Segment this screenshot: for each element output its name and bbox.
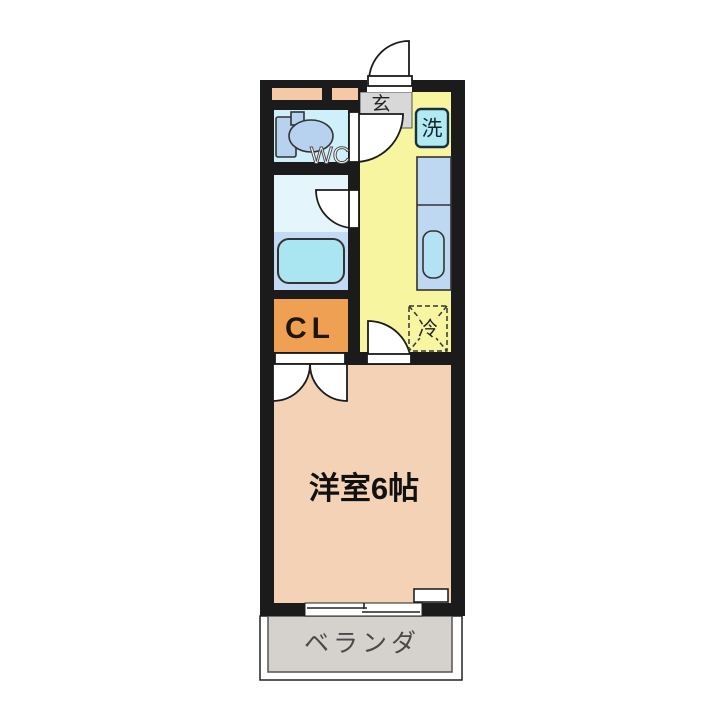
fridge-label: 冷	[418, 317, 438, 340]
bathtub-icon	[278, 239, 344, 283]
floorplan-page: 玄 洗 WC CL 冷 洋室6帖 ベランダ	[0, 0, 720, 720]
kitchen-sink	[423, 231, 444, 278]
room-vent-box	[414, 589, 448, 602]
main-room-door-leaf	[367, 354, 411, 364]
kitchen-counter	[417, 157, 451, 290]
toilet-label: WC	[310, 142, 350, 169]
entrance-door-leaf	[368, 76, 412, 86]
wall-accent-left	[272, 88, 322, 100]
floorplan-drawing: 玄 洗 WC CL 冷 洋室6帖 ベランダ	[0, 0, 720, 720]
closet-label: CL	[285, 312, 335, 345]
veranda-label: ベランダ	[304, 630, 420, 658]
bath-door-leaf	[349, 190, 359, 228]
wall-bath-closet-divider	[274, 290, 354, 299]
closet-door-opening	[275, 353, 345, 364]
wall-right	[451, 80, 465, 616]
main-room-label: 洋室6帖	[309, 471, 419, 506]
wc-door-leaf	[349, 112, 359, 162]
wall-accent-right	[332, 88, 358, 100]
wall-accents	[272, 88, 358, 100]
entrance-label: 玄	[371, 93, 390, 115]
veranda-window	[305, 603, 422, 616]
washer-label: 洗	[422, 118, 443, 141]
wall-left	[260, 80, 274, 616]
